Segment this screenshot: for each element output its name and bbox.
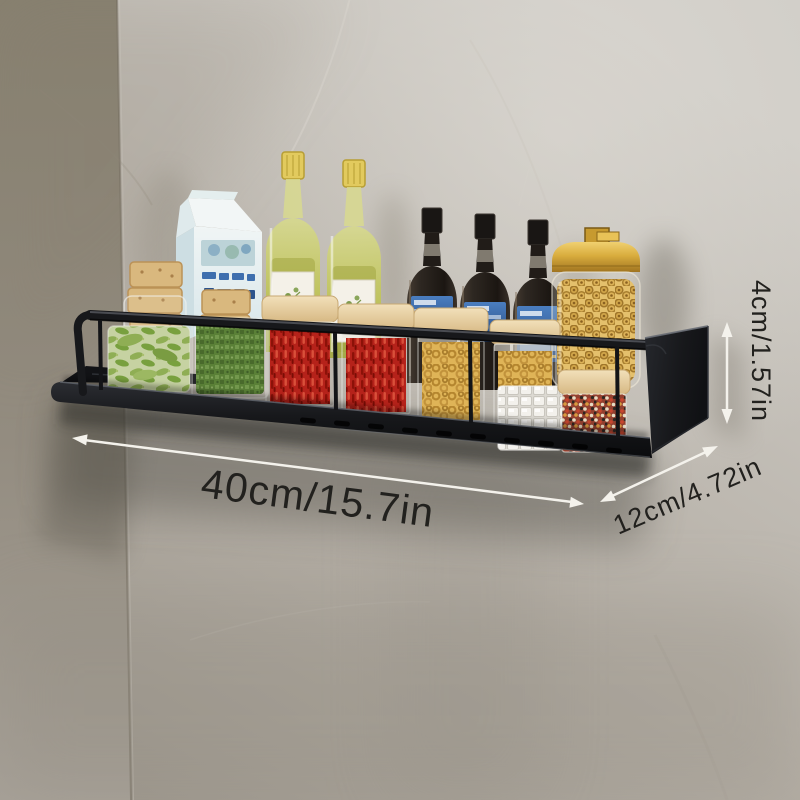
herb-jar <box>192 318 268 398</box>
gold-lid-pasta-jar <box>552 228 640 388</box>
height-label: 4cm/1.57in <box>746 280 776 422</box>
macaroni-jar-1 <box>414 308 488 422</box>
product-photo: 40cm/15.7in 12cm/4.72in 4cm/1.57in <box>0 0 800 800</box>
spice-rack-scene: 40cm/15.7in 12cm/4.72in 4cm/1.57in <box>0 0 800 800</box>
chili-jar-2 <box>338 304 414 414</box>
chili-jar-1 <box>262 296 338 406</box>
